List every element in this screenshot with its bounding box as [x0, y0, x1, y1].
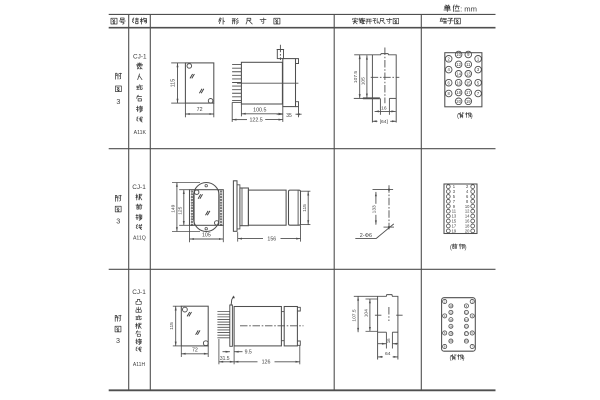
svg-text:20: 20 [456, 99, 461, 104]
svg-text:A11H: A11H [133, 362, 146, 368]
svg-text:72: 72 [192, 347, 198, 353]
svg-text:11: 11 [466, 62, 471, 67]
svg-text:122.5: 122.5 [249, 117, 262, 123]
svg-text:107.5: 107.5 [353, 71, 359, 84]
svg-text:15: 15 [466, 80, 471, 85]
svg-text:12: 12 [449, 311, 453, 315]
svg-text:14: 14 [456, 71, 461, 76]
svg-text:19: 19 [465, 339, 469, 343]
svg-text:31.5: 31.5 [220, 356, 230, 362]
svg-text:100.5: 100.5 [253, 107, 266, 113]
svg-text:115: 115 [169, 322, 175, 330]
svg-text:18: 18 [456, 90, 461, 95]
svg-text:11: 11 [465, 311, 468, 315]
svg-text:3: 3 [116, 336, 120, 345]
svg-text:16: 16 [449, 324, 453, 328]
svg-text:133: 133 [371, 205, 377, 213]
svg-text:10: 10 [449, 304, 453, 308]
svg-text:[64]: [64] [380, 119, 389, 125]
svg-text:10: 10 [456, 52, 461, 57]
svg-text:107.5: 107.5 [352, 309, 358, 322]
svg-text:19: 19 [466, 99, 471, 104]
svg-text:15: 15 [465, 324, 469, 328]
svg-text:126: 126 [262, 360, 271, 366]
svg-text:A11Q: A11Q [133, 235, 146, 241]
svg-text:13: 13 [466, 71, 471, 76]
svg-text:CJ-1: CJ-1 [132, 289, 146, 296]
svg-text:): ) [471, 112, 473, 119]
svg-text:12: 12 [456, 62, 461, 67]
svg-text:): ) [465, 244, 467, 251]
svg-text:115: 115 [302, 204, 308, 212]
svg-text:105: 105 [202, 233, 211, 239]
svg-text:64: 64 [385, 351, 391, 357]
svg-text:115: 115 [171, 79, 177, 87]
svg-text:149: 149 [170, 204, 176, 212]
svg-text:): ) [463, 354, 465, 361]
svg-text:14: 14 [449, 318, 453, 322]
svg-text:: mm: : mm [460, 4, 477, 13]
svg-text:105: 105 [360, 77, 366, 85]
svg-text:17: 17 [465, 332, 469, 336]
svg-text:104: 104 [363, 309, 369, 317]
svg-text:CJ-1: CJ-1 [132, 184, 146, 191]
svg-text:16: 16 [381, 105, 387, 111]
svg-text:16: 16 [456, 80, 461, 85]
svg-text:9.5: 9.5 [245, 350, 252, 356]
svg-text:20: 20 [449, 339, 453, 343]
svg-text:35: 35 [286, 113, 292, 119]
svg-text:3: 3 [116, 217, 120, 226]
svg-text:13: 13 [465, 318, 469, 322]
svg-text:20: 20 [465, 228, 470, 233]
svg-text:A11K: A11K [134, 130, 147, 136]
svg-text:17: 17 [466, 90, 471, 95]
svg-text:3: 3 [116, 97, 120, 106]
svg-text:16: 16 [386, 338, 391, 343]
svg-text:125: 125 [178, 206, 184, 214]
svg-text:CJ-1: CJ-1 [133, 53, 147, 60]
svg-text:18: 18 [449, 332, 453, 336]
svg-text:156: 156 [267, 236, 276, 242]
svg-text:72: 72 [197, 107, 203, 113]
svg-text:19: 19 [452, 228, 457, 233]
